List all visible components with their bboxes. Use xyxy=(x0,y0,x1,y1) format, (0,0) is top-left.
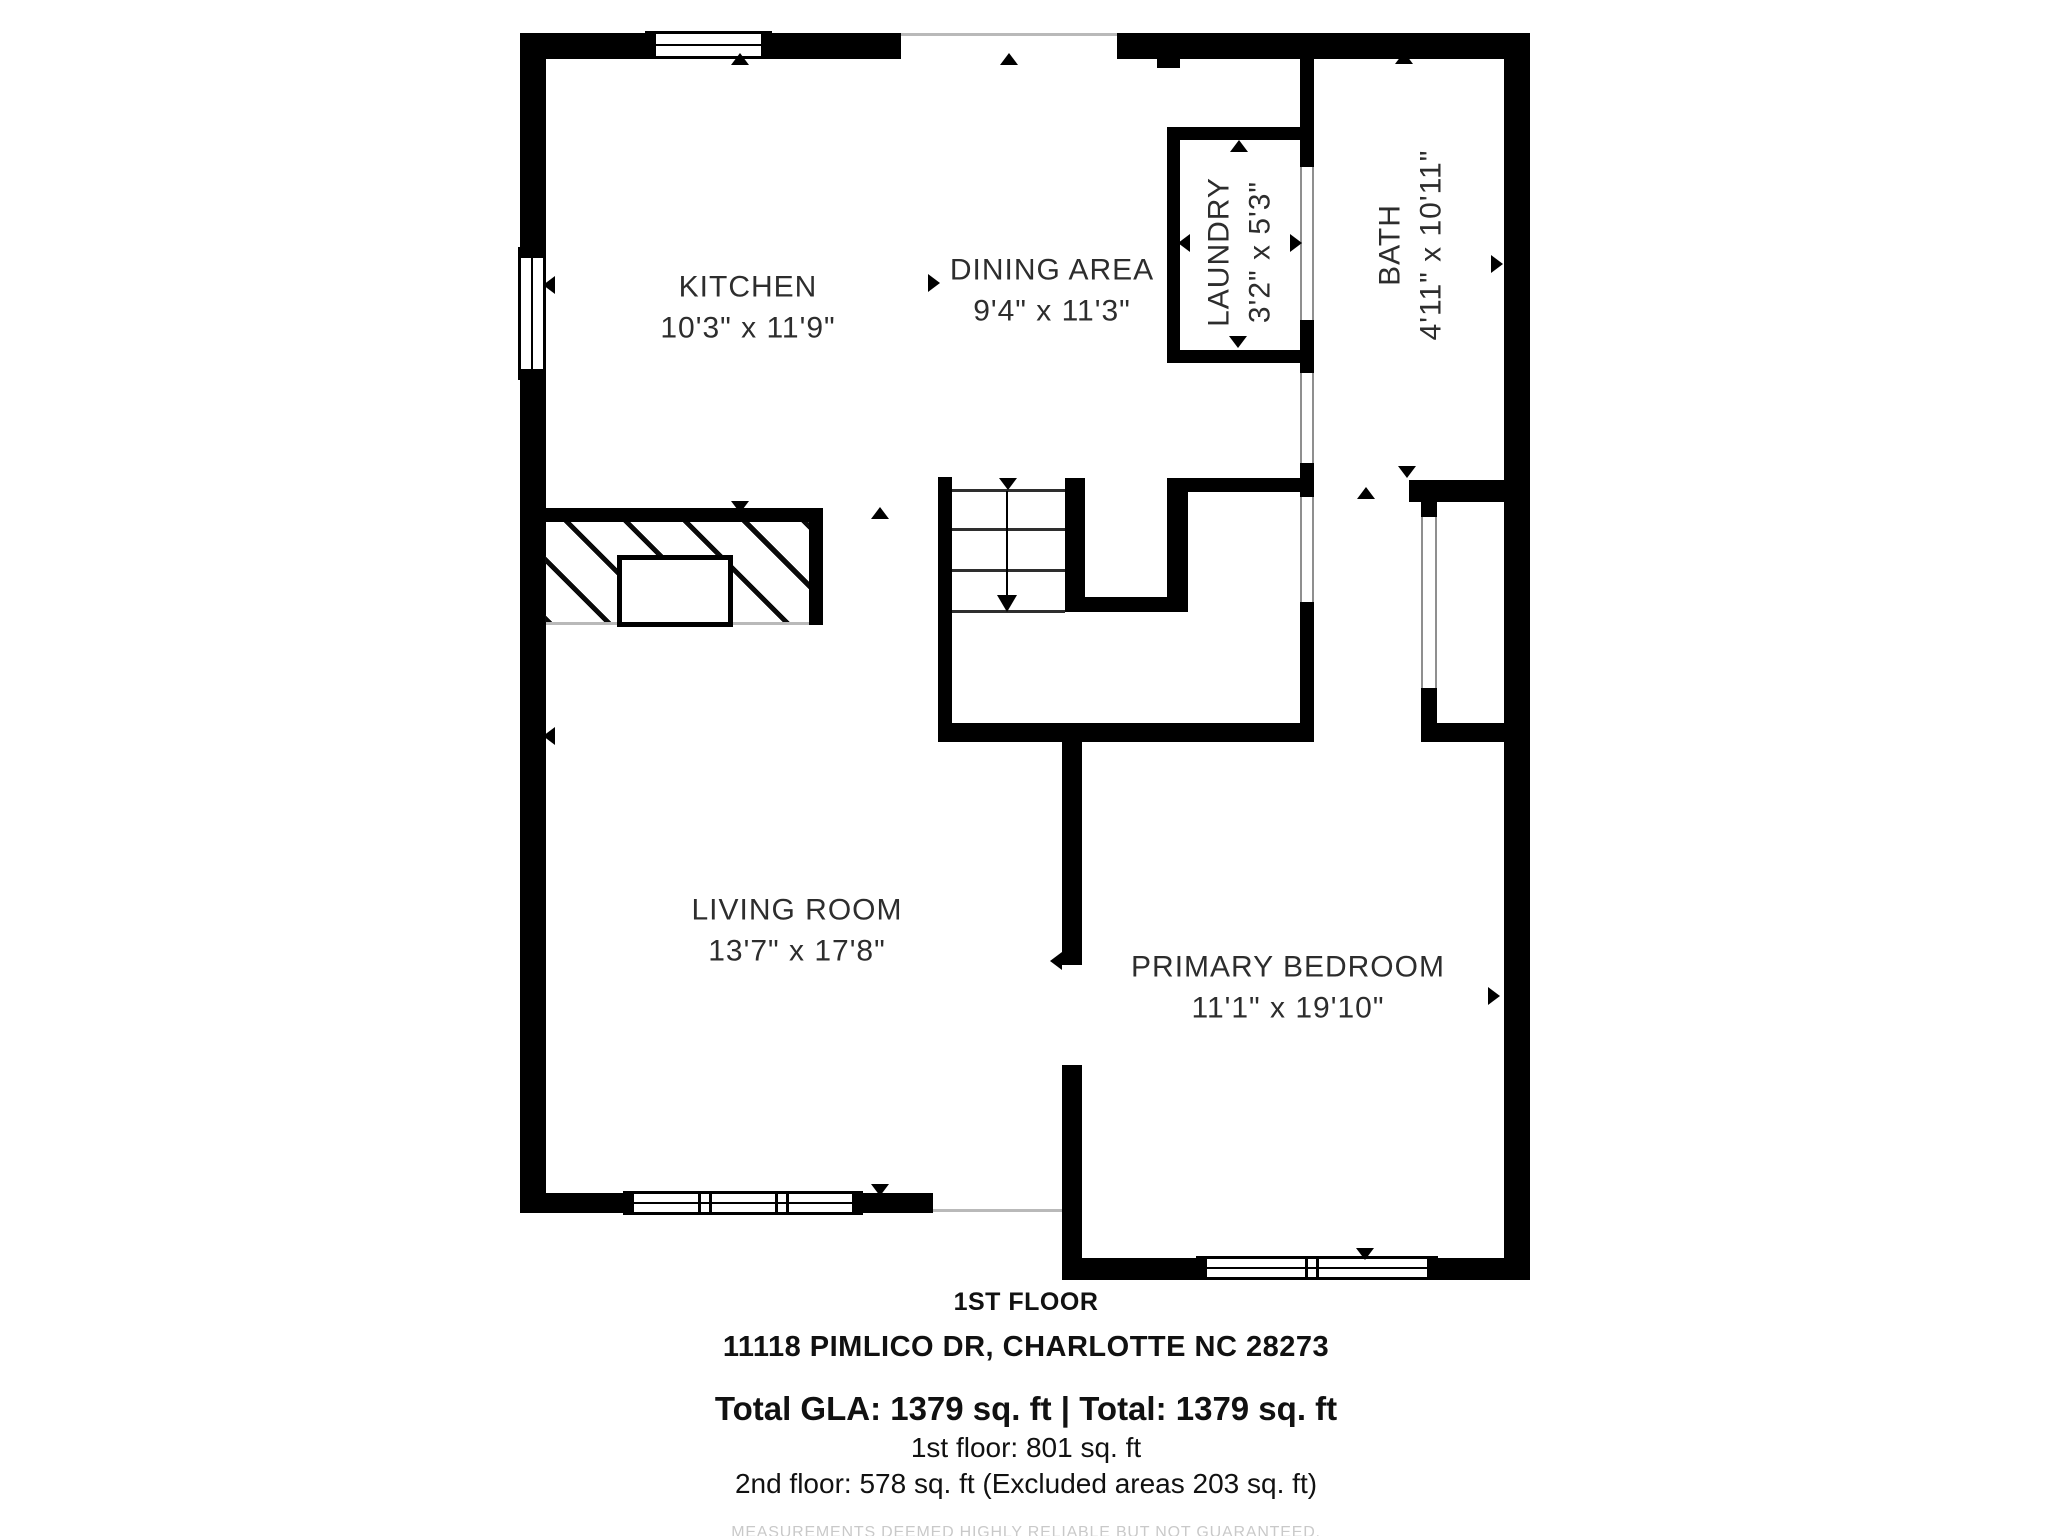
hall-divider-lower xyxy=(1300,602,1314,723)
laundry-marker-bottom-icon xyxy=(1229,336,1247,348)
entry-marker-icon xyxy=(1000,53,1018,65)
room-name-living-room: LIVING ROOM xyxy=(691,890,902,931)
room-name-dining-area: DINING AREA xyxy=(950,250,1154,291)
stair-tread xyxy=(952,528,1065,531)
hall-opening-upper xyxy=(1300,373,1314,463)
living-bottom-window xyxy=(623,1191,863,1215)
bath-left-wall-upper xyxy=(1300,59,1314,167)
room-name-laundry: LAUNDRY xyxy=(1199,177,1240,327)
top-wall-mid xyxy=(772,33,901,59)
room-label-dining-area: DINING AREA9'4" x 11'3" xyxy=(950,250,1154,333)
room-name-kitchen: KITCHEN xyxy=(660,267,835,308)
dining-marker-icon xyxy=(928,274,940,292)
stair-closet-bottom-wall xyxy=(1065,597,1188,612)
living-bottom-window-mullion xyxy=(775,1194,778,1212)
room-label-kitchen: KITCHEN10'3" x 11'9" xyxy=(660,267,835,350)
room-label-living-room: LIVING ROOM13'7" x 17'8" xyxy=(691,890,902,973)
room-dimensions-bath: 4'11" x 10'11" xyxy=(1411,150,1452,341)
room-dimensions-living-room: 13'7" x 17'8" xyxy=(691,931,902,972)
living-bottom-window-mullion xyxy=(698,1194,701,1212)
plan-footer: 1ST FLOOR 11118 PIMLICO DR, CHARLOTTE NC… xyxy=(520,1288,1532,1536)
bedroom-left-wall-upper xyxy=(1062,742,1082,965)
floorplan-page: KITCHEN10'3" x 11'9"DINING AREA9'4" x 11… xyxy=(0,0,2048,1536)
top-wall-stub xyxy=(1157,59,1180,68)
room-label-bath: BATH4'11" x 10'11" xyxy=(1370,150,1453,341)
hall-bottom-wall xyxy=(938,723,1314,742)
total-gla: Total GLA: 1379 sq. ft | Total: 1379 sq.… xyxy=(520,1390,1532,1428)
room-dimensions-dining-area: 9'4" x 11'3" xyxy=(950,291,1154,332)
hall-opening-lower xyxy=(1300,497,1314,602)
laundry-top-wall xyxy=(1167,127,1313,140)
room-label-primary-bedroom: PRIMARY BEDROOM11'1" x 19'10" xyxy=(1131,947,1445,1030)
disclaimer: MEASUREMENTS DEEMED HIGHLY RELIABLE BUT … xyxy=(520,1524,1532,1536)
room-name-bath: BATH xyxy=(1370,150,1411,341)
laundry-marker-right-icon xyxy=(1290,234,1302,252)
fireplace-wall xyxy=(545,508,823,522)
stairs-top-marker-icon xyxy=(999,478,1017,490)
room-dimensions-laundry: 3'2" x 5'3" xyxy=(1240,177,1281,327)
first-floor-area: 1st floor: 801 sq. ft xyxy=(520,1432,1532,1464)
stair-tread xyxy=(952,569,1065,572)
stairwell-left-wall xyxy=(938,477,952,742)
top-wall-right xyxy=(1117,33,1530,59)
bath-door-marker-icon xyxy=(1398,466,1416,478)
living-marker-left-icon xyxy=(543,727,555,745)
bedroom-door-marker-icon xyxy=(1050,952,1062,970)
living-bottom-window-mullion xyxy=(709,1194,712,1212)
bath-marker-right-icon xyxy=(1491,255,1503,273)
window-marker-icon xyxy=(543,276,555,294)
hall-marker-icon xyxy=(1357,487,1375,499)
top-opening-line xyxy=(901,33,1117,36)
bedroom-closet-door xyxy=(1421,517,1437,688)
living-bottom-window-mullion xyxy=(786,1194,789,1212)
bedroom-top-wall-right xyxy=(1421,723,1504,742)
stairs-down-arrow-stem xyxy=(1006,491,1008,595)
bath-left-wall-mid xyxy=(1300,320,1314,373)
entry-marker-icon xyxy=(731,53,749,65)
stair-closet-right-wall xyxy=(1167,478,1188,612)
bedroom-window-marker-icon xyxy=(1356,1248,1374,1260)
stair-closet-left-wall xyxy=(1065,478,1085,612)
kitchen-top-window-line xyxy=(648,44,769,46)
living-bottom-wall-left xyxy=(520,1193,623,1213)
left-wall-upper xyxy=(520,33,546,247)
closet-door-top-cap xyxy=(1421,480,1437,517)
bath-bottom-wall xyxy=(1167,478,1300,492)
bedroom-left-wall-lower xyxy=(1062,1065,1082,1280)
room-dimensions-kitchen: 10'3" x 11'9" xyxy=(660,308,835,349)
kitchen-top-window xyxy=(645,31,772,59)
living-bottom-wall-right xyxy=(863,1193,933,1213)
floor-label: 1ST FLOOR xyxy=(520,1288,1532,1317)
laundry-bath-door xyxy=(1300,167,1314,320)
room-dimensions-primary-bedroom: 11'1" x 19'10" xyxy=(1131,988,1445,1029)
right-wall xyxy=(1504,33,1530,1280)
laundry-marker-left-icon xyxy=(1178,234,1190,252)
fireplace-hearth xyxy=(617,555,733,627)
room-name-primary-bedroom: PRIMARY BEDROOM xyxy=(1131,947,1445,988)
living-bottom-window-line xyxy=(626,1202,860,1204)
kitchen-left-window-line xyxy=(531,250,533,377)
room-label-laundry: LAUNDRY3'2" x 5'3" xyxy=(1199,177,1282,327)
bedroom-bottom-window-mullion xyxy=(1316,1259,1319,1277)
living-window-marker-icon xyxy=(871,1184,889,1196)
second-floor-area: 2nd floor: 578 sq. ft (Excluded areas 20… xyxy=(520,1468,1532,1500)
laundry-marker-top-icon xyxy=(1230,140,1248,152)
bedroom-bottom-wall-right xyxy=(1438,1258,1504,1280)
laundry-bottom-wall xyxy=(1167,350,1313,363)
passage-marker-icon xyxy=(871,507,889,519)
bedroom-marker-right-icon xyxy=(1488,987,1500,1005)
fireplace-right-wall xyxy=(809,522,823,625)
bedroom-bottom-window xyxy=(1196,1256,1438,1280)
left-wall-lower xyxy=(520,375,546,1213)
bedroom-bottom-wall-left xyxy=(1082,1258,1196,1280)
fireplace-marker-icon xyxy=(731,501,749,513)
bedroom-bottom-window-mullion xyxy=(1305,1259,1308,1277)
kitchen-left-window xyxy=(518,247,546,380)
living-bedroom-line xyxy=(933,1209,1062,1212)
closet-door-bottom-cap xyxy=(1421,688,1437,723)
stairs-down-arrow-head xyxy=(997,595,1017,612)
bath-marker-top-icon xyxy=(1395,52,1413,64)
hall-divider-nub xyxy=(1300,463,1314,497)
property-address: 11118 PIMLICO DR, CHARLOTTE NC 28273 xyxy=(520,1331,1532,1364)
